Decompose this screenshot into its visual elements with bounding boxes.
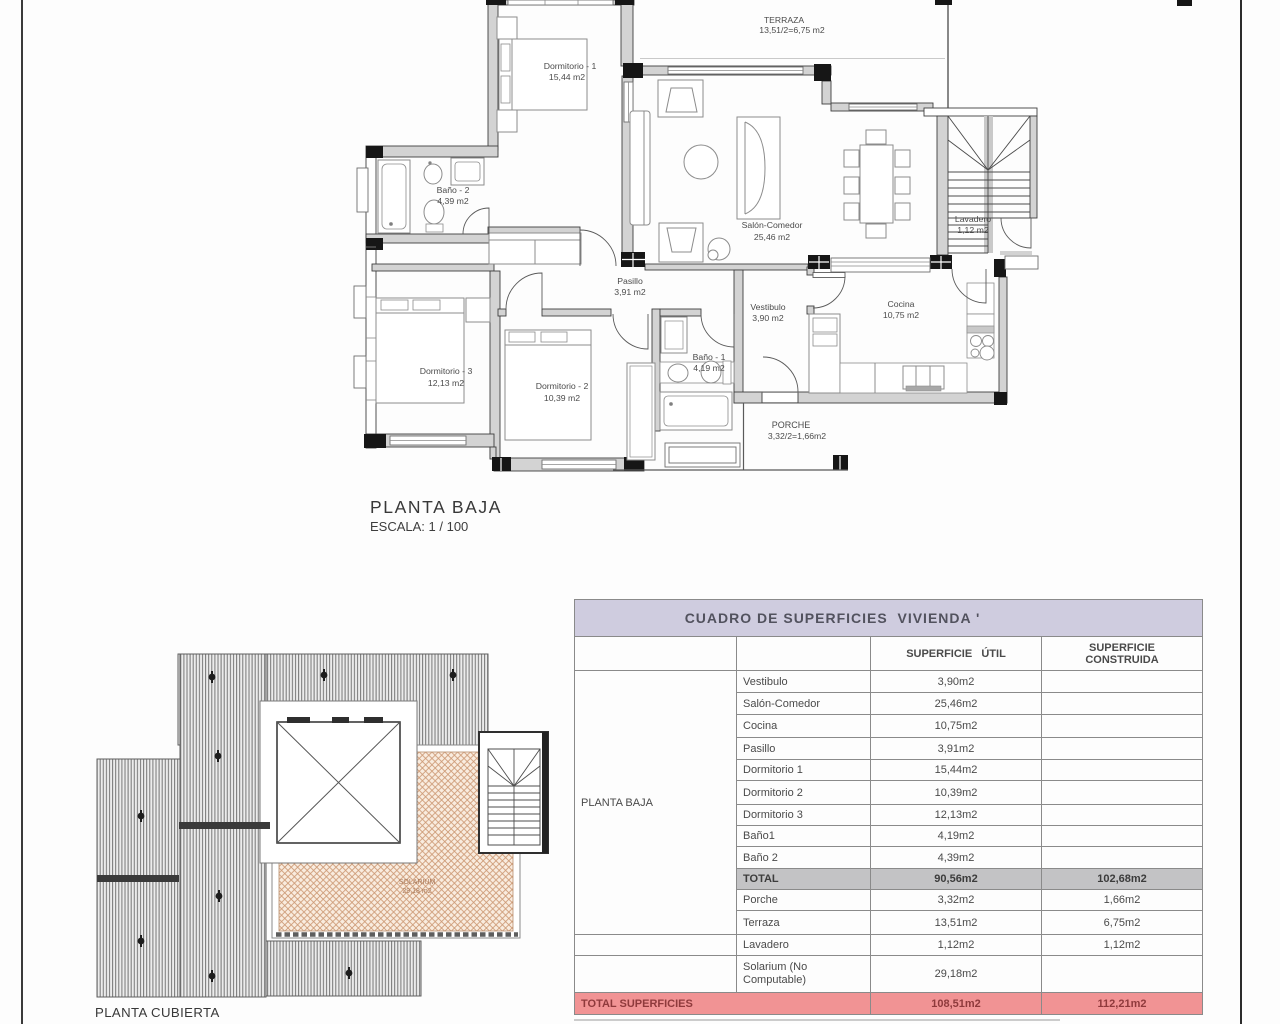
- svg-text:10,39 m2: 10,39 m2: [544, 393, 580, 403]
- svg-text:Salón-Comedor: Salón-Comedor: [742, 220, 803, 230]
- svg-text:3,91 m2: 3,91 m2: [614, 287, 646, 297]
- svg-text:13,51/2=6,75 m2: 13,51/2=6,75 m2: [759, 25, 825, 35]
- svg-text:15,44 m2: 15,44 m2: [549, 72, 585, 82]
- svg-text:29,18 m2: 29,18 m2: [402, 888, 431, 895]
- svg-text:4,19 m2: 4,19 m2: [693, 363, 725, 373]
- svg-text:4,39 m2: 4,39 m2: [437, 196, 469, 206]
- svg-text:3,90 m2: 3,90 m2: [752, 313, 784, 323]
- svg-text:Dormitorio - 3: Dormitorio - 3: [420, 366, 473, 376]
- svg-text:Lavadero: Lavadero: [955, 214, 991, 224]
- svg-text:3,32/2=1,66m2: 3,32/2=1,66m2: [768, 431, 826, 441]
- svg-text:Dormitorio - 1: Dormitorio - 1: [544, 61, 597, 71]
- svg-text:25,46 m2: 25,46 m2: [754, 232, 790, 242]
- svg-text:Pasillo: Pasillo: [617, 276, 643, 286]
- svg-text:PORCHE: PORCHE: [772, 420, 811, 430]
- svg-text:Baño - 2: Baño - 2: [437, 185, 470, 195]
- svg-text:Vestibulo: Vestibulo: [750, 302, 785, 312]
- svg-text:10,75 m2: 10,75 m2: [883, 310, 919, 320]
- svg-text:1,12 m2: 1,12 m2: [957, 225, 989, 235]
- svg-text:PLANTA BAJA: PLANTA BAJA: [370, 497, 502, 517]
- svg-text:ESCALA: 1 / 100: ESCALA: 1 / 100: [370, 519, 468, 534]
- svg-text:PLANTA CUBIERTA: PLANTA CUBIERTA: [95, 1005, 220, 1020]
- svg-text:12,13 m2: 12,13 m2: [428, 378, 464, 388]
- svg-text:Cocina: Cocina: [887, 299, 914, 309]
- svg-text:Baño - 1: Baño - 1: [693, 352, 726, 362]
- svg-text:TERRAZA: TERRAZA: [764, 15, 804, 25]
- svg-text:SOLARIUM: SOLARIUM: [399, 879, 436, 886]
- svg-text:Dormitorio - 2: Dormitorio - 2: [536, 381, 589, 391]
